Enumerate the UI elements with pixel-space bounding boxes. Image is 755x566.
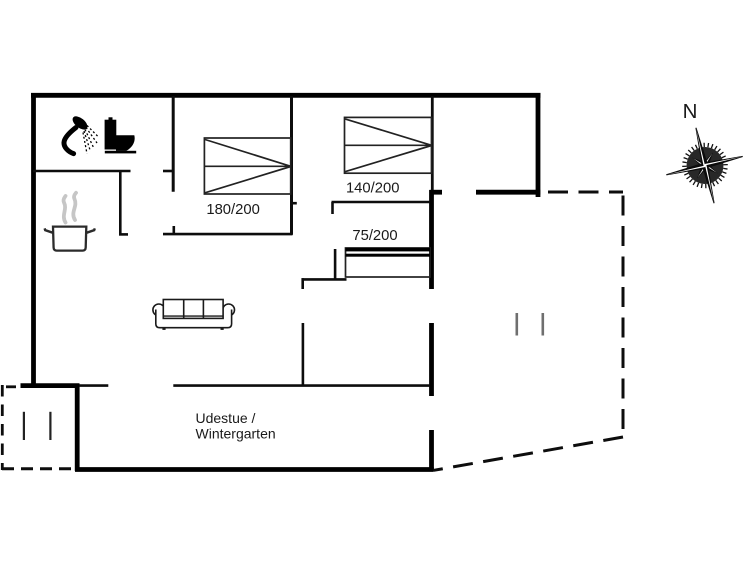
svg-text:75/200: 75/200 xyxy=(352,228,397,244)
svg-text:140/200: 140/200 xyxy=(346,181,400,197)
svg-text:N: N xyxy=(683,100,698,123)
svg-text:Wintergarten: Wintergarten xyxy=(196,426,276,442)
svg-text:Udestue /: Udestue / xyxy=(196,410,256,426)
svg-text:180/200: 180/200 xyxy=(206,202,260,218)
